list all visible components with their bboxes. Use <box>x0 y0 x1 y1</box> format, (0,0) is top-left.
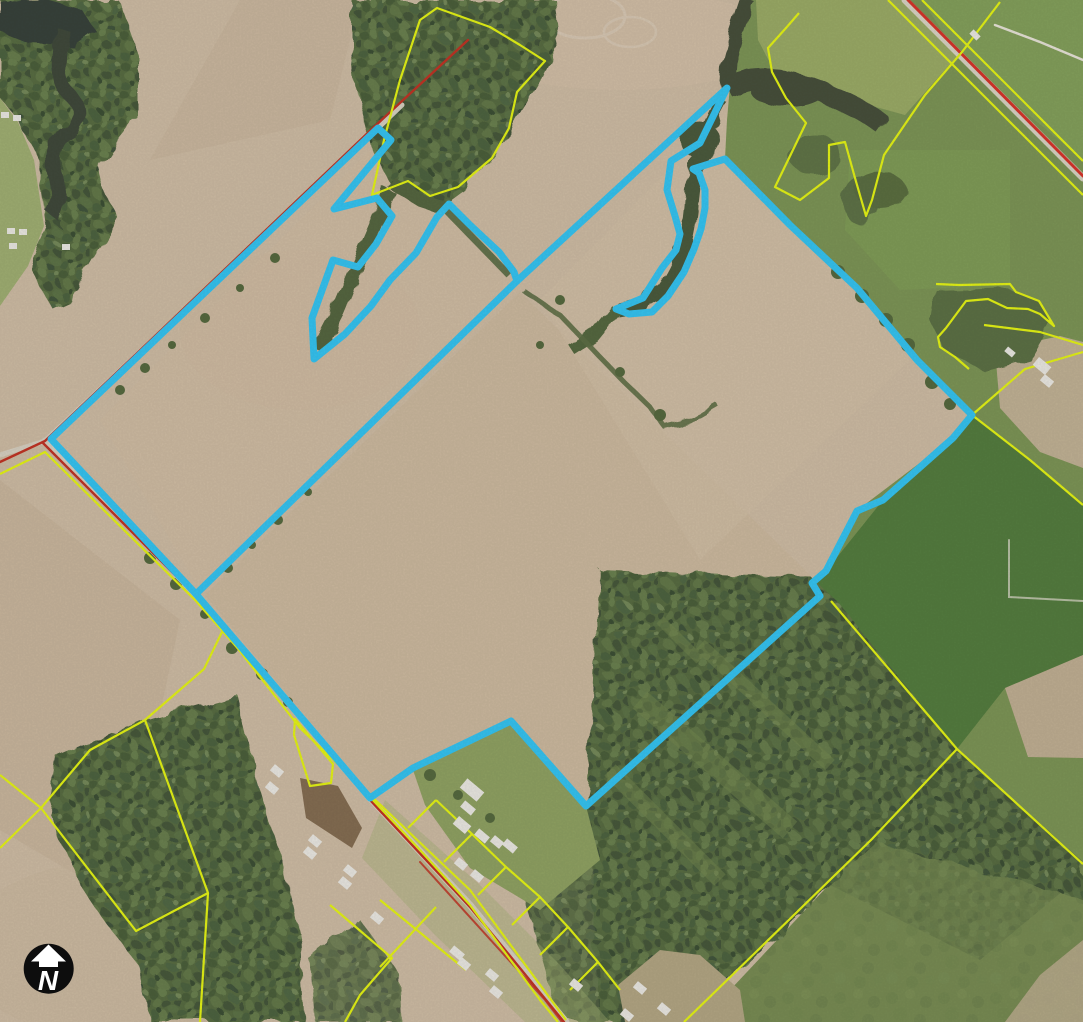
svg-text:N: N <box>38 965 59 996</box>
